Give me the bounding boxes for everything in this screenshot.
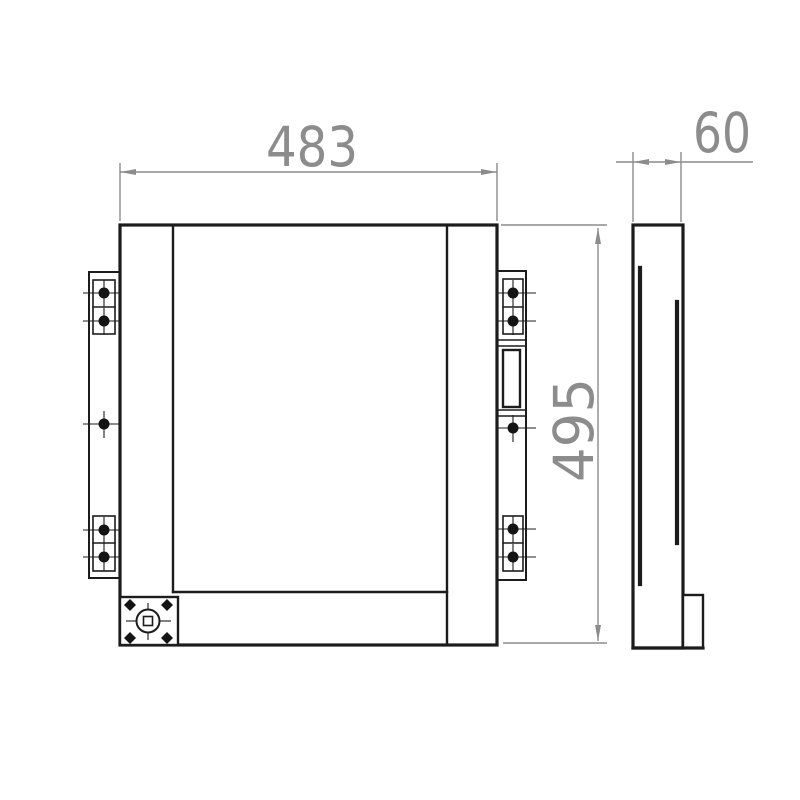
- arrowhead: [633, 159, 649, 165]
- front-view: [83, 225, 536, 645]
- arrowhead: [595, 625, 601, 641]
- motor-mount-block: [120, 597, 178, 645]
- side-view: [633, 225, 703, 648]
- arrowhead: [481, 169, 497, 175]
- arrowhead: [665, 159, 681, 165]
- dimension-width: 483: [120, 115, 497, 221]
- technical-drawing-canvas: 483 60 495: [0, 0, 800, 800]
- dimension-depth: 60: [616, 101, 753, 222]
- dimension-depth-label: 60: [693, 101, 751, 165]
- drawing-page: 483 60 495: [0, 0, 800, 800]
- arrowhead: [595, 228, 601, 244]
- dimension-width-label: 483: [266, 115, 358, 179]
- arrowhead: [120, 169, 136, 175]
- side-foot-block: [683, 595, 703, 648]
- front-body-outline: [120, 225, 497, 645]
- dimension-height-label: 495: [542, 378, 606, 482]
